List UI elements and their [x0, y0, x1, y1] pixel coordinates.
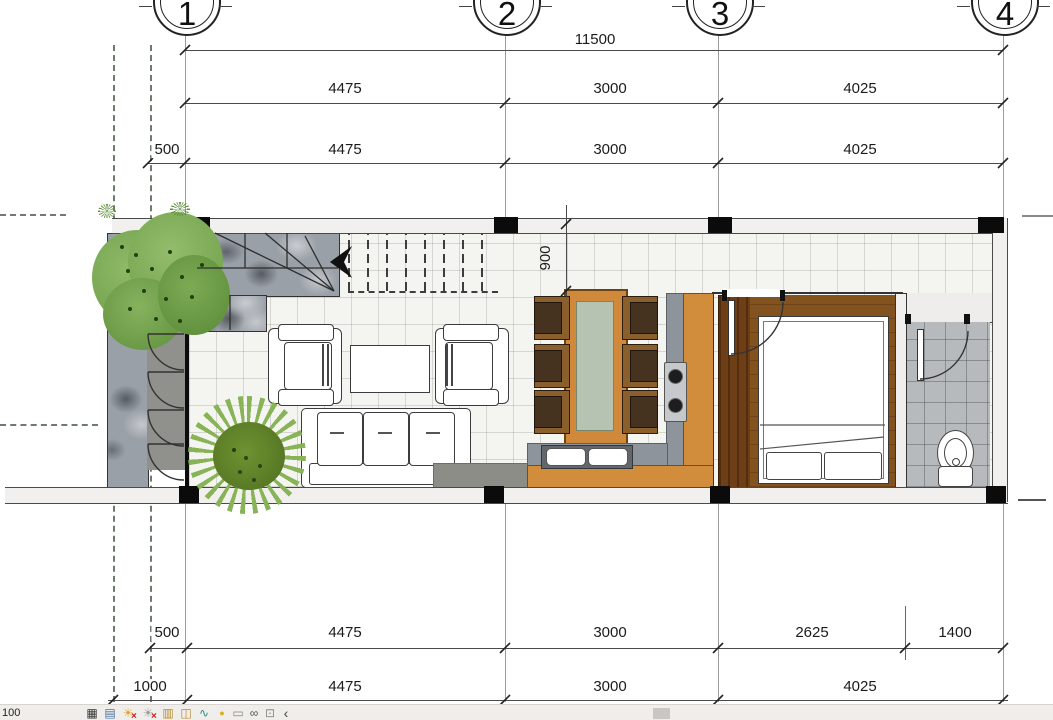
dim-line [185, 103, 1003, 104]
grass-tuft [170, 202, 190, 216]
sofa-cushion [317, 412, 363, 466]
reveal-constraints-icon[interactable]: ∿ [196, 705, 212, 720]
dim-text: 4475 [325, 81, 364, 97]
dim-line [185, 50, 1003, 51]
sofa-dash [378, 432, 392, 434]
dim-text: 4475 [325, 625, 364, 641]
dining-chair-seat [534, 302, 562, 334]
sofa-dash [426, 432, 440, 434]
bedroom-door-opening [723, 289, 783, 297]
bubble-tick [539, 6, 552, 7]
drawing-canvas[interactable]: 1 2 3 4 11500 4475 3000 4025 500 4475 30… [0, 0, 1053, 720]
dining-chair-seat [630, 350, 658, 382]
visual-style-icon[interactable]: ▤ [102, 705, 118, 720]
reveal-hidden-elements-icon[interactable]: ● [214, 705, 230, 720]
temporary-hide-isolate-icon[interactable]: ∞ [246, 705, 262, 720]
crop-view-icon[interactable]: ▥ [160, 705, 176, 720]
toilet-tank [938, 466, 973, 487]
grid-bubble-1-label: 1 [178, 0, 196, 33]
dining-chair-seat [630, 302, 658, 334]
armchair-left-arm-top [278, 324, 334, 341]
left-reference-dash [0, 214, 66, 216]
dim-text: 4025 [840, 679, 879, 695]
door-jamb [964, 314, 970, 324]
detail-level-icon[interactable]: ▦ [84, 705, 100, 720]
column [978, 217, 1004, 233]
right-reference-line-top [1022, 215, 1053, 217]
armchair-left-arm-bottom [278, 389, 334, 406]
dim-line [148, 163, 1003, 164]
dining-table-top [576, 301, 614, 431]
sofa-cushion [409, 412, 455, 466]
armchair-left-seat [284, 342, 332, 390]
dim-text: 1000 [130, 679, 169, 695]
armchair-line [446, 344, 448, 386]
dining-chair-seat [534, 396, 562, 428]
armchair-right-arm-top [443, 324, 499, 341]
bathroom-door-leaf [917, 329, 924, 381]
wardrobe [718, 295, 752, 489]
grid-bubble-2: 2 [473, 0, 541, 36]
grid-bubble-4-label: 4 [996, 0, 1014, 33]
dim-text: 3000 [590, 81, 629, 97]
kitchen-bedroom-partition [713, 293, 714, 487]
sink-basin [588, 448, 628, 466]
coffee-table [350, 345, 430, 393]
door-jamb [722, 290, 727, 301]
dim-text: 500 [151, 625, 182, 641]
column [179, 486, 199, 503]
armchair-line [322, 344, 324, 386]
column [710, 486, 730, 503]
left-green-dash [0, 424, 98, 426]
dining-chair-seat [534, 350, 562, 382]
armchair-right-arm-bottom [443, 389, 499, 406]
stair-upper-dashed-treads [348, 233, 498, 291]
dim-text: 4025 [840, 81, 879, 97]
dim-witness-905 [905, 606, 906, 660]
grid-bubble-1: 1 [153, 0, 221, 36]
dim-text: 500 [151, 142, 182, 158]
dim-text: 3000 [590, 679, 629, 695]
bubble-tick [957, 6, 970, 7]
dining-chair-seat [630, 396, 658, 428]
right-reference-line-bottom [1018, 499, 1046, 501]
column [484, 486, 504, 503]
collapse-chevron-icon[interactable]: ‹ [278, 705, 294, 720]
dim-text: 1400 [935, 625, 974, 641]
armchair-line [451, 344, 453, 386]
column [986, 486, 1006, 503]
sun-path-off-x: × [131, 711, 137, 720]
tree-speckles [120, 245, 124, 249]
toilet-flush-dot [952, 458, 960, 466]
dim-text: 4475 [325, 679, 364, 695]
palm-speckles [232, 448, 236, 452]
dim-text: 4475 [325, 142, 364, 158]
bubble-tick [672, 6, 685, 7]
grass-tuft [98, 204, 116, 218]
dim-text-overall: 11500 [572, 32, 619, 48]
grid-bubble-2-label: 2 [498, 0, 516, 33]
bubble-tick [139, 6, 152, 7]
shadows-off-x: × [151, 711, 157, 720]
dim-text: 3000 [590, 625, 629, 641]
bathroom-north-wall [903, 293, 992, 323]
stair-dashed-edge [348, 291, 498, 293]
bubble-tick [752, 6, 765, 7]
column [708, 217, 732, 233]
dim-text: 3000 [590, 142, 629, 158]
bottom-wall [5, 487, 1008, 504]
dim-text: 4025 [840, 142, 879, 158]
door-jamb [780, 290, 785, 301]
splitter-handle[interactable] [653, 708, 670, 719]
bubble-tick [459, 6, 472, 7]
dim-text: 2625 [792, 625, 831, 641]
sofa-dash [330, 432, 344, 434]
temporary-view-icon[interactable]: ▭ [230, 705, 246, 720]
right-wall [992, 218, 1008, 502]
view-control-bar: 100 ▦ ▤ ☀ × ☀ × ▥ ◫ ∿ ● ▭ ∞ ⊡ ‹ [0, 704, 1053, 720]
grid-bubble-3-label: 3 [711, 0, 729, 33]
sofa-cushion [363, 412, 409, 466]
bed-pillow [824, 452, 882, 480]
dim-line [108, 700, 1008, 701]
top-wall [112, 218, 1008, 234]
bedroom-door-leaf [728, 300, 735, 356]
cooktop-burner [668, 398, 683, 413]
door-jamb [905, 314, 911, 324]
grid-bubble-4: 4 [971, 0, 1039, 36]
armchair-line [327, 344, 329, 386]
grid-bubble-3: 3 [686, 0, 754, 36]
bed-pillow [766, 452, 822, 480]
bubble-tick [219, 6, 232, 7]
dim-line [150, 648, 1003, 649]
palm-core [213, 422, 285, 490]
scale-button[interactable]: 100 [2, 707, 20, 719]
dim-text-stair-width: 900 [538, 242, 554, 273]
gate-band [147, 330, 185, 470]
kitchen-counter-orange-vertical [683, 293, 714, 489]
column [494, 217, 518, 233]
sink-basin [546, 448, 586, 466]
bubble-tick [1037, 6, 1050, 7]
show-crop-region-icon[interactable]: ◫ [178, 705, 194, 720]
dimension-lock-icon[interactable]: ⊡ [262, 705, 278, 720]
cooktop-burner [668, 369, 683, 384]
tree-foliage [158, 255, 230, 335]
stair-dim-line [566, 205, 567, 298]
